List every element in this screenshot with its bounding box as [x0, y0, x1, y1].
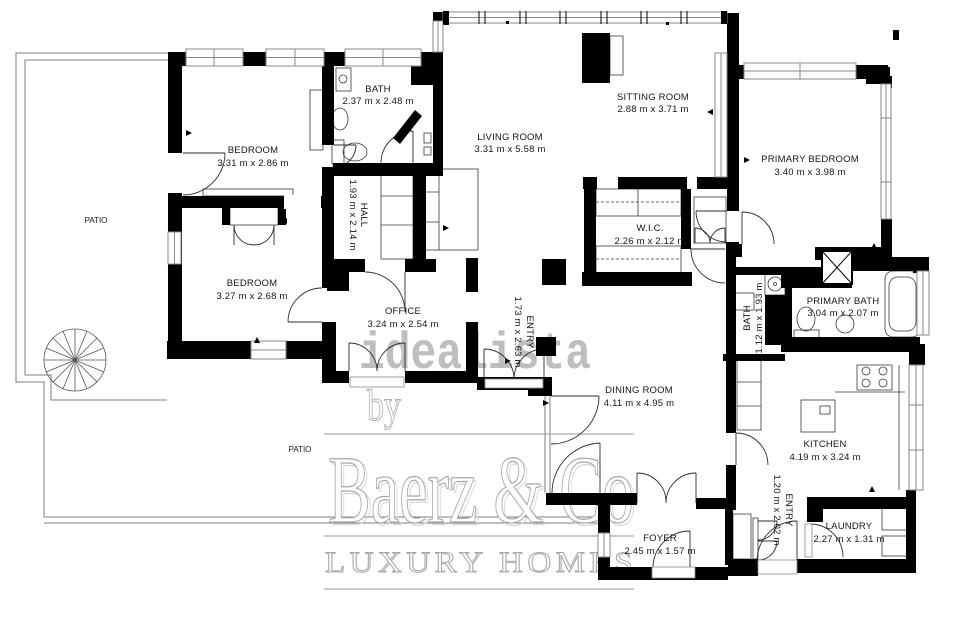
svg-text:HALL: HALL [358, 203, 369, 228]
svg-text:1.73 m x 2.63 m: 1.73 m x 2.63 m [512, 296, 523, 367]
svg-text:1.93 m x 2.14 m: 1.93 m x 2.14 m [347, 179, 358, 250]
svg-text:BATH: BATH [742, 305, 753, 330]
svg-text:3.24 m x 2.54 m: 3.24 m x 2.54 m [367, 319, 438, 330]
svg-text:PRIMARY BEDROOM: PRIMARY BEDROOM [761, 154, 859, 165]
svg-text:DINING ROOM: DINING ROOM [605, 385, 673, 396]
svg-text:1.20 m x 2.02 m: 1.20 m x 2.02 m [771, 474, 782, 545]
svg-text:1.12 m x 1.93 m: 1.12 m x 1.93 m [754, 282, 765, 353]
svg-text:SITTING ROOM: SITTING ROOM [617, 92, 689, 103]
svg-text:BEDROOM: BEDROOM [227, 278, 278, 289]
svg-text:KITCHEN: KITCHEN [803, 439, 846, 450]
svg-text:2.27 m x 1.31 m: 2.27 m x 1.31 m [813, 534, 884, 545]
svg-text:OFFICE: OFFICE [385, 306, 421, 317]
svg-text:Baerz & Co: Baerz & Co [328, 436, 634, 543]
svg-text:PATIO: PATIO [85, 216, 108, 225]
svg-text:BATH: BATH [365, 84, 390, 95]
svg-text:3.31 m x 2.86 m: 3.31 m x 2.86 m [217, 158, 288, 169]
svg-text:3.31 m x 5.58 m: 3.31 m x 5.58 m [474, 144, 545, 155]
svg-text:3.40 m x 3.98 m: 3.40 m x 3.98 m [774, 167, 845, 178]
svg-text:LUXURY HOMES: LUXURY HOMES [325, 546, 637, 579]
svg-text:ENTRY: ENTRY [524, 315, 535, 348]
svg-text:3.04 m x 2.07 m: 3.04 m x 2.07 m [807, 308, 878, 319]
svg-text:2.88 m x 3.71 m: 2.88 m x 3.71 m [617, 104, 688, 115]
svg-text:LIVING ROOM: LIVING ROOM [477, 132, 543, 143]
svg-text:BEDROOM: BEDROOM [228, 145, 279, 156]
svg-text:PATIO: PATIO [289, 445, 312, 454]
svg-text:4.11 m x 4.95 m: 4.11 m x 4.95 m [604, 398, 674, 409]
svg-text:4.19 m x 3.24 m: 4.19 m x 3.24 m [789, 452, 860, 463]
svg-text:W.I.C.: W.I.C. [636, 223, 663, 234]
svg-text:ENTRY: ENTRY [783, 493, 794, 526]
svg-text:3.27 m x 2.68 m: 3.27 m x 2.68 m [216, 291, 287, 302]
svg-text:2.37 m x 2.48 m: 2.37 m x 2.48 m [342, 96, 413, 107]
svg-text:2.26 m x 2.12 m: 2.26 m x 2.12 m [614, 236, 685, 247]
svg-text:LAUNDRY: LAUNDRY [826, 521, 873, 532]
svg-text:by: by [367, 381, 401, 430]
svg-text:2.45 m x 1.57 m: 2.45 m x 1.57 m [624, 546, 695, 557]
svg-text:PRIMARY BATH: PRIMARY BATH [807, 296, 880, 307]
svg-text:FOYER: FOYER [643, 533, 677, 544]
